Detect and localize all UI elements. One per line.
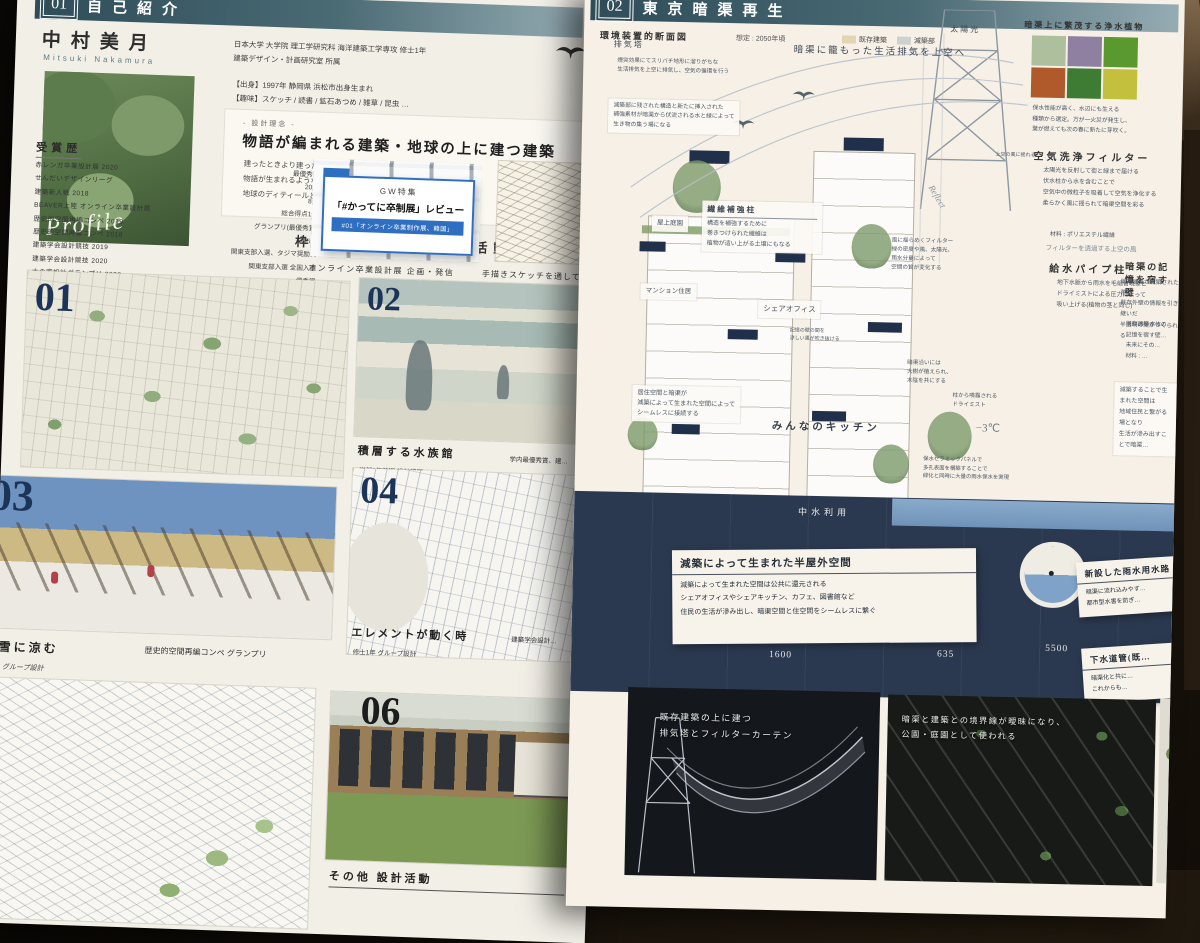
project-04-award: 建築学会設計… bbox=[511, 634, 557, 646]
annotation-text: 太陽光 bbox=[950, 25, 980, 35]
dimension-value: 1600 bbox=[769, 650, 792, 660]
section-slab bbox=[844, 137, 884, 151]
award-name: 建築学会設計競技 2019 bbox=[32, 241, 108, 254]
section-slab bbox=[639, 241, 665, 252]
render-1-caption: 既存建築の上に建つ 排気塔とフィルターカーテン bbox=[659, 710, 793, 744]
annotation: みんなのキッチン bbox=[772, 418, 880, 437]
feature-badge: #01「オンライン卒業制作展、韓国」 bbox=[331, 217, 463, 236]
section-slab bbox=[728, 329, 758, 340]
feature-tag: GW特集 bbox=[325, 184, 473, 200]
plant-photo bbox=[1103, 37, 1138, 68]
annotation-text: 排気塔 bbox=[614, 40, 644, 50]
plants-note: 保水性能が高く、水辺にも生える 種類から選定。万が一火災が発生し、 葉が燃えても… bbox=[1032, 103, 1131, 137]
half-outdoor-space-box: 減築によって生まれた半屋外空間 減築によって生まれた空間は公共に還元される シェ… bbox=[672, 548, 977, 644]
plant-photo bbox=[1067, 36, 1102, 67]
collage-caption: オンライン卒業設計展 企画・発信 bbox=[308, 262, 455, 278]
award-name: BEAVER上陸 オンライン卒業設計展 bbox=[34, 201, 151, 215]
award-name: せんだいデザインリーグ bbox=[35, 174, 113, 187]
project-03-meta: グループ設計 bbox=[2, 662, 44, 673]
award-name: 歴史的空間再編コンペ 2018 bbox=[33, 228, 123, 241]
annotation: 太陽光 bbox=[950, 24, 980, 37]
annotation: −3℃ bbox=[976, 420, 1000, 438]
annotation: マンション住居 bbox=[640, 283, 696, 301]
section-slab bbox=[672, 424, 700, 435]
plant-photo bbox=[1067, 68, 1102, 99]
awards-title: 受賞歴 bbox=[36, 139, 82, 160]
purifying-plants-grid bbox=[1031, 35, 1138, 99]
annotation-text: 暗渠に籠もった生活排気を上空へ bbox=[794, 44, 967, 59]
annotation: 煙突効果にてスリバチ地形に溜りがちな 生活排気を上空に排気し、空気の循環を行う bbox=[617, 57, 729, 77]
hand-sketch-thumbnail bbox=[495, 161, 590, 264]
community-note: 減築することで生まれた空間は 地域住民と繋がる場となり 生活が滲み出すことで暗渠… bbox=[1113, 382, 1177, 456]
annotation: 保水セラミックパネルで 多孔表面を構築することで 緑化と同時に大量の雨水保水を実… bbox=[923, 455, 1010, 483]
filter-wind-note: フィルターを透過する上空の風 bbox=[1045, 243, 1136, 257]
profile-name: 中村美月 bbox=[41, 25, 158, 56]
person-silhouette bbox=[497, 365, 510, 399]
annotation: 柱から噴霧される ドライミスト bbox=[952, 392, 997, 411]
desk-shadow-edge bbox=[1184, 130, 1200, 690]
project-01-number: 01 bbox=[34, 273, 76, 321]
annotation-text: みんなのキッチン bbox=[772, 420, 880, 434]
filter-small-note: 上空の風に揺れる bbox=[995, 151, 1035, 161]
rainwater-channel-box: 新設した雨水用水路 暗渠に流れ込みやす… 都市型水害を防ぎ… bbox=[1076, 553, 1185, 617]
annotation: シェアオフィス bbox=[758, 300, 821, 319]
annotation-text: 柱から噴霧される ドライミスト bbox=[952, 393, 997, 409]
bird-icon bbox=[556, 43, 587, 60]
photo-of-portfolio-boards: { "colors":{"header_teal":"#3a5863","acc… bbox=[0, 0, 1200, 870]
annotation: 屋上庭園 bbox=[652, 215, 688, 232]
project-04-number: 04 bbox=[360, 468, 400, 513]
render-ventilation-tower: 既存建築の上に建つ 排気塔とフィルターカーテン bbox=[624, 687, 880, 880]
annotation: 暗渠に籠もった生活排気を上空へ bbox=[794, 42, 967, 61]
left-board-title: 自己紹介 bbox=[87, 0, 188, 19]
annotation-text: 記憶の壁の間を 涼しい風が吹き抜ける bbox=[790, 327, 840, 342]
annotation: 居住空間と暗渠が 減築によって生まれた空間によって シームレスに接続する bbox=[632, 385, 741, 423]
project-06-number: 06 bbox=[360, 686, 402, 734]
annotation-text: −3℃ bbox=[976, 422, 1000, 435]
project-06-title: その他 設計活動 bbox=[328, 867, 565, 895]
sewer-pipe-box: 下水道管(既… 暗渠化と共に… これからも… bbox=[1081, 639, 1185, 703]
right-board-title: 東京暗渠再生 bbox=[642, 0, 792, 21]
annotation-text: 風に揺らめくフィルター 緑の密度や風、太陽光、 雨水分量によって 空間の質が変化… bbox=[891, 237, 953, 271]
sketch-caption: 手描きスケッチを通して… bbox=[482, 268, 590, 283]
person-silhouette bbox=[405, 340, 433, 411]
project-03-artwork bbox=[0, 475, 336, 639]
adjacent-render-sliver bbox=[1156, 698, 1185, 884]
annotation-text: 保水セラミックパネルで 多孔表面を構築することで 緑化と同時に大量の雨水保水を実… bbox=[923, 456, 1009, 481]
bird-icon bbox=[793, 88, 815, 100]
dimension-value: 635 bbox=[937, 650, 954, 660]
feature-title: 「#かってに卒制展」レビュー bbox=[324, 198, 472, 217]
project-04-meta: 修士1年 グループ設計 bbox=[353, 646, 417, 658]
profile-origin-hobby: 【出身】1997年 静岡県 浜松市出身生まれ【趣味】スケッチ / 読書 / 鉱石… bbox=[232, 78, 410, 113]
render-2-caption: 暗渠と建築との境界線が曖昧になり、 公園・庭園として使われる bbox=[901, 713, 1066, 746]
board-tokyo-culvert-regeneration: 02 東京暗渠再生 環境装置的断面図 想定 : 2050年頃 既存建築減築部 bbox=[566, 0, 1185, 918]
section-building-left bbox=[642, 215, 795, 498]
philosophy-tag: - 設計理念 - bbox=[243, 118, 296, 130]
board-self-introduction: 01 自己紹介 中村美月 Mitsuki Nakamura Profile 日本… bbox=[0, 0, 618, 943]
annotation-text: シェアオフィス bbox=[763, 304, 816, 314]
section-drawing-note: 想定 : 2050年頃 bbox=[736, 33, 786, 44]
award-name: 赤レンガ卒業設計展 2020 bbox=[35, 161, 118, 174]
annotation: Reflect bbox=[925, 182, 950, 211]
filter-material: 材料 : ポリエステル繊維 bbox=[1050, 230, 1115, 242]
white-building bbox=[514, 742, 571, 798]
half-outdoor-body: 減築によって生まれた空間は公共に還元される シェアオフィスやシェアキッチン、カフ… bbox=[672, 573, 976, 625]
plants-title: 暗渠上に繁茂する浄水植物 bbox=[1024, 19, 1144, 33]
plant-photo bbox=[1031, 67, 1066, 98]
annotation-text: 中水利用 bbox=[798, 507, 850, 518]
profile-affiliation: 日本大学 大学院 理工学研究科 海洋建築工学専攻 修士1年建築デザイン・計画研究… bbox=[233, 38, 426, 73]
render-culvert-garden: 暗渠と建築との境界線が曖昧になり、 公園・庭園として使われる bbox=[884, 695, 1156, 887]
project-05-artwork bbox=[0, 677, 315, 928]
water-pipe-title: 給水パイプ柱 bbox=[1049, 260, 1127, 277]
gw-feature-box: GW特集 「#かってに卒制展」レビュー #01「オンライン卒業制作展、韓国」 bbox=[321, 175, 476, 256]
right-board-number: 02 bbox=[598, 0, 630, 19]
annotation: 風に揺らめくフィルター 緑の密度や風、太陽光、 雨水分量によって 空間の質が変化… bbox=[891, 236, 953, 273]
award-result: 関東支部入選、タジマ奨励賞 bbox=[231, 248, 317, 261]
air-filter-title: 空気洗浄フィルター bbox=[1033, 147, 1150, 164]
annotation: 減築部に残された構造と新たに挿入された 補強素材が暗渠から伏流される水と緑によっ… bbox=[608, 99, 740, 136]
person-figure bbox=[147, 564, 154, 576]
annotation-text: Reflect bbox=[927, 183, 948, 210]
section-slab bbox=[868, 322, 902, 333]
annotation-text: 構造を補強するために 巻きつけられた繊維は 植物が這い上がる土壌にもなる bbox=[707, 221, 791, 248]
project-03-award: 歴史的空間再編コンペ グランプリ bbox=[144, 645, 266, 660]
memory-wall-description-2: 既存建築本体の… 記憶を宿す壁… 未来にその… 材料 : … bbox=[1125, 319, 1172, 363]
left-board-number: 01 bbox=[43, 0, 76, 17]
project-03-number: 03 bbox=[0, 469, 35, 522]
annotation-text: 暗渠沿いには 大樹が植えられ、 木陰を共にする bbox=[907, 360, 952, 385]
annotation-heading: 繊維補強柱 bbox=[707, 204, 817, 221]
dimension-value: 5500 bbox=[1045, 644, 1068, 654]
annotation: 繊維補強柱構造を補強するために 巻きつけられた繊維は 植物が這い上がる土壌にもな… bbox=[701, 201, 822, 255]
annotation-text: 屋上庭園 bbox=[657, 220, 683, 228]
award-result: 関東支部入選 全国入選 bbox=[248, 262, 316, 275]
annotation: 中水利用 bbox=[798, 505, 850, 520]
annotation: 記憶の壁の間を 涼しい風が吹き抜ける bbox=[790, 326, 840, 343]
annotation-text: 減築部に残された構造と新たに挿入された 補強素材が暗渠から伏流される水と緑によっ… bbox=[613, 103, 735, 129]
award-name: 建築学会設計競技 2020 bbox=[32, 255, 108, 268]
air-filter-description: 太陽光を反射して街と緑まで届ける 伏水柱から水を含むことで 空気中の微粒子を吸着… bbox=[1042, 166, 1157, 213]
annotation-text: 居住空間と暗渠が 減築によって生まれた空間によって シームレスに接続する bbox=[637, 389, 735, 417]
award-name: 歴史的空間再編コンペ 2019 bbox=[33, 214, 123, 227]
award-name: 建築新人戦 2018 bbox=[34, 188, 89, 200]
project-02-number: 02 bbox=[366, 280, 401, 319]
annotation: 暗渠沿いには 大樹が植えられ、 木陰を共にする bbox=[907, 359, 952, 387]
annotation: 排気塔 bbox=[614, 39, 644, 52]
plant-photo bbox=[1031, 35, 1066, 66]
half-outdoor-title: 減築によって生まれた半屋外空間 bbox=[672, 548, 976, 575]
feature-corner-tab bbox=[323, 168, 349, 177]
annotation-text: 煙突効果にてスリバチ地形に溜りがちな 生活排気を上空に排気し、空気の循環を行う bbox=[617, 58, 729, 75]
legend-swatch bbox=[897, 37, 911, 45]
project-03-title: 雪に涼む bbox=[0, 638, 59, 657]
project-02-award: 学内最優秀賞、建… bbox=[509, 453, 568, 465]
annotation-text: マンション住居 bbox=[646, 287, 692, 295]
plant-photo bbox=[1103, 69, 1138, 100]
award-result: グランプリ(最優秀賞) bbox=[254, 222, 318, 234]
person-figure bbox=[51, 572, 58, 584]
project-02-title: 積層する水族館 bbox=[357, 442, 455, 461]
